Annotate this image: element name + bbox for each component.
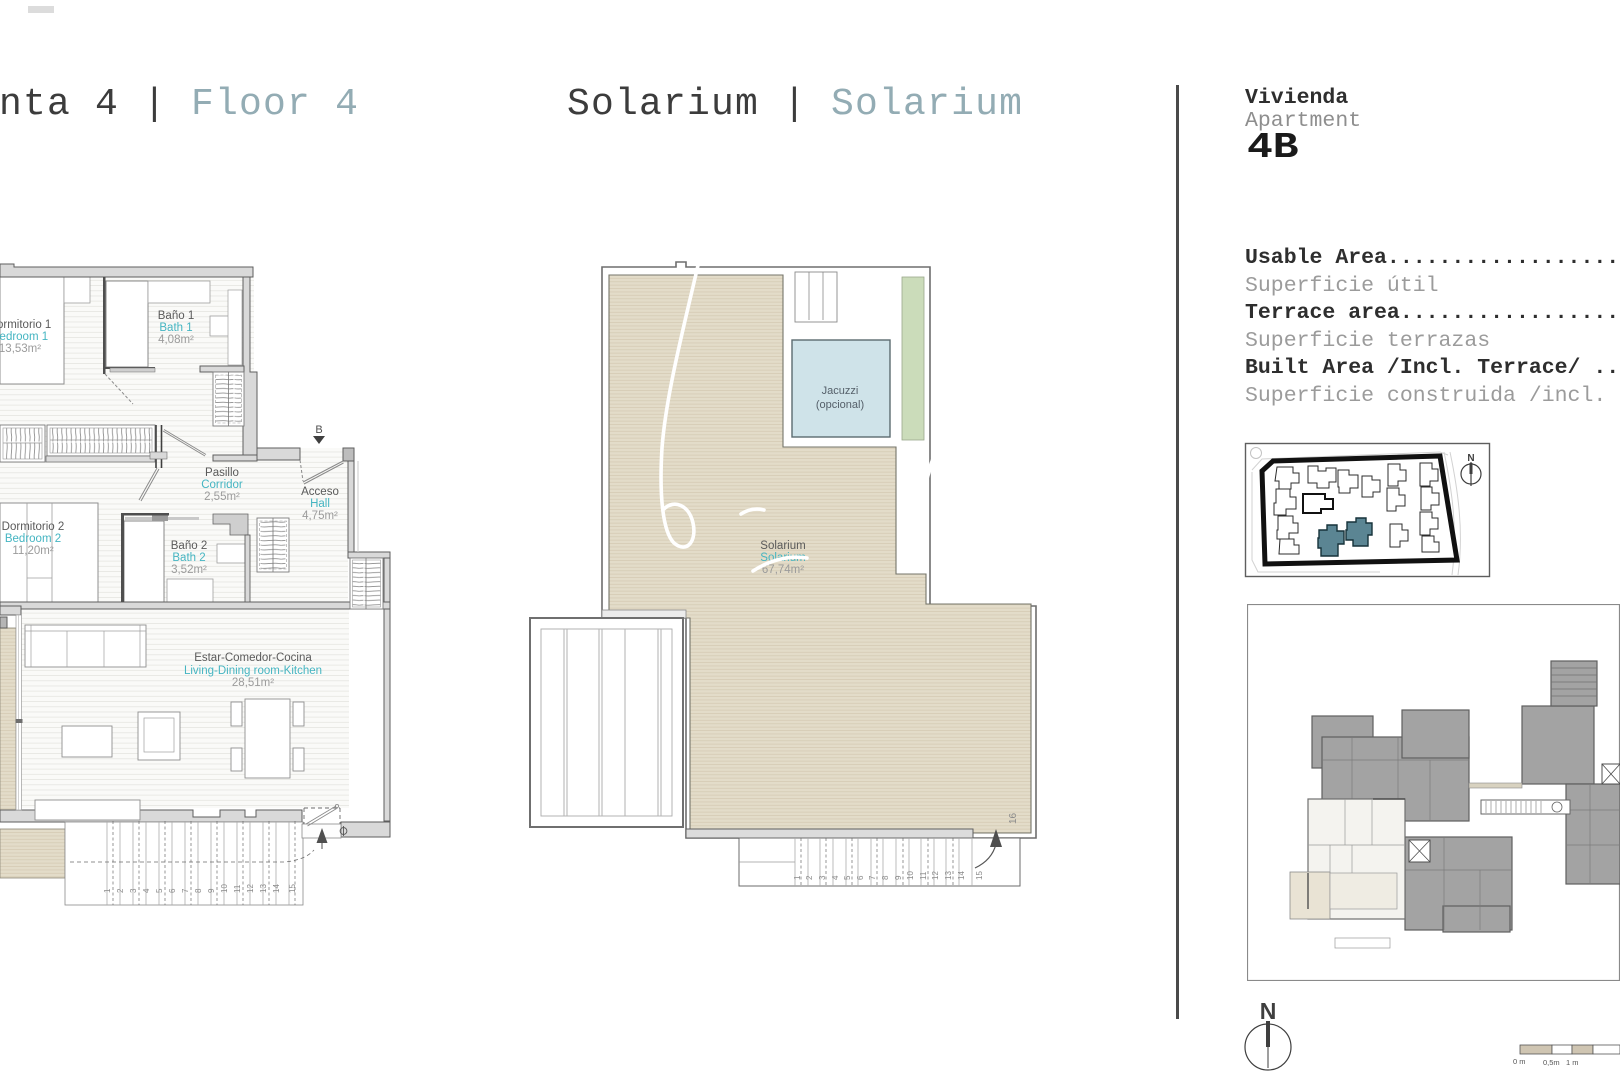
svg-text:6: 6 [856,875,865,880]
svg-text:13: 13 [944,871,953,880]
svg-text:Acceso: Acceso [301,486,339,498]
svg-text:11: 11 [233,884,242,893]
svg-text:Pasillo: Pasillo [205,467,239,479]
svg-text:3: 3 [818,875,827,880]
svg-text:Bedroom 1: Bedroom 1 [0,331,48,343]
svg-text:5: 5 [155,888,164,893]
svg-text:13: 13 [259,884,268,893]
svg-text:Baño 1: Baño 1 [158,310,194,322]
svg-text:2: 2 [116,888,125,893]
svg-text:Corridor: Corridor [201,479,243,491]
svg-text:9: 9 [894,875,903,880]
svg-text:3,52m²: 3,52m² [171,564,207,576]
svg-text:Bath 2: Bath 2 [172,552,205,564]
svg-text:10: 10 [906,871,915,880]
svg-text:N: N [1260,998,1277,1024]
svg-text:10: 10 [220,884,229,893]
svg-text:1: 1 [793,875,802,880]
svg-text:Jacuzzi: Jacuzzi [822,385,859,397]
svg-text:4: 4 [142,888,151,893]
svg-text:7: 7 [868,875,877,880]
svg-text:Bath 1: Bath 1 [159,322,192,334]
svg-text:28,51m²: 28,51m² [232,677,274,689]
svg-text:15: 15 [975,871,984,880]
svg-text:1: 1 [103,888,112,893]
svg-text:7: 7 [181,888,190,893]
svg-text:14: 14 [957,871,966,880]
svg-text:B: B [315,424,322,436]
svg-text:2,55m²: 2,55m² [204,491,240,503]
svg-text:Dormitorio 2: Dormitorio 2 [2,521,65,533]
svg-text:Hall: Hall [310,498,330,510]
svg-text:0,5m: 0,5m [1543,1058,1560,1067]
svg-text:N: N [1467,453,1474,464]
svg-text:Solarium: Solarium [760,540,805,552]
svg-text:12: 12 [246,884,255,893]
svg-text:1 m: 1 m [1566,1058,1579,1067]
svg-text:14: 14 [272,884,281,893]
svg-text:Estar-Comedor-Cocina: Estar-Comedor-Cocina [194,652,312,664]
svg-text:(opcional): (opcional) [816,399,864,411]
svg-text:4,75m²: 4,75m² [302,510,338,522]
svg-text:6: 6 [168,888,177,893]
svg-text:8: 8 [194,888,203,893]
svg-text:3: 3 [129,888,138,893]
svg-text:9: 9 [207,888,216,893]
svg-text:8: 8 [881,875,890,880]
svg-text:Living-Dining room-Kitchen: Living-Dining room-Kitchen [184,665,322,677]
svg-text:2: 2 [805,875,814,880]
svg-text:5: 5 [843,875,852,880]
svg-text:Baño 2: Baño 2 [171,540,207,552]
svg-text:67,74m²: 67,74m² [762,564,804,576]
svg-text:Dormitorio 1: Dormitorio 1 [0,319,51,331]
svg-text:13,53m²: 13,53m² [0,343,41,355]
svg-text:12: 12 [931,871,940,880]
svg-text:15: 15 [288,884,297,893]
svg-text:16: 16 [1008,812,1019,824]
svg-text:4,08m²: 4,08m² [158,334,194,346]
svg-text:11: 11 [919,871,928,880]
svg-text:4: 4 [831,875,840,880]
svg-text:Bedroom 2: Bedroom 2 [5,533,61,545]
svg-text:11,20m²: 11,20m² [12,545,54,557]
svg-text:0 m: 0 m [1513,1057,1526,1066]
